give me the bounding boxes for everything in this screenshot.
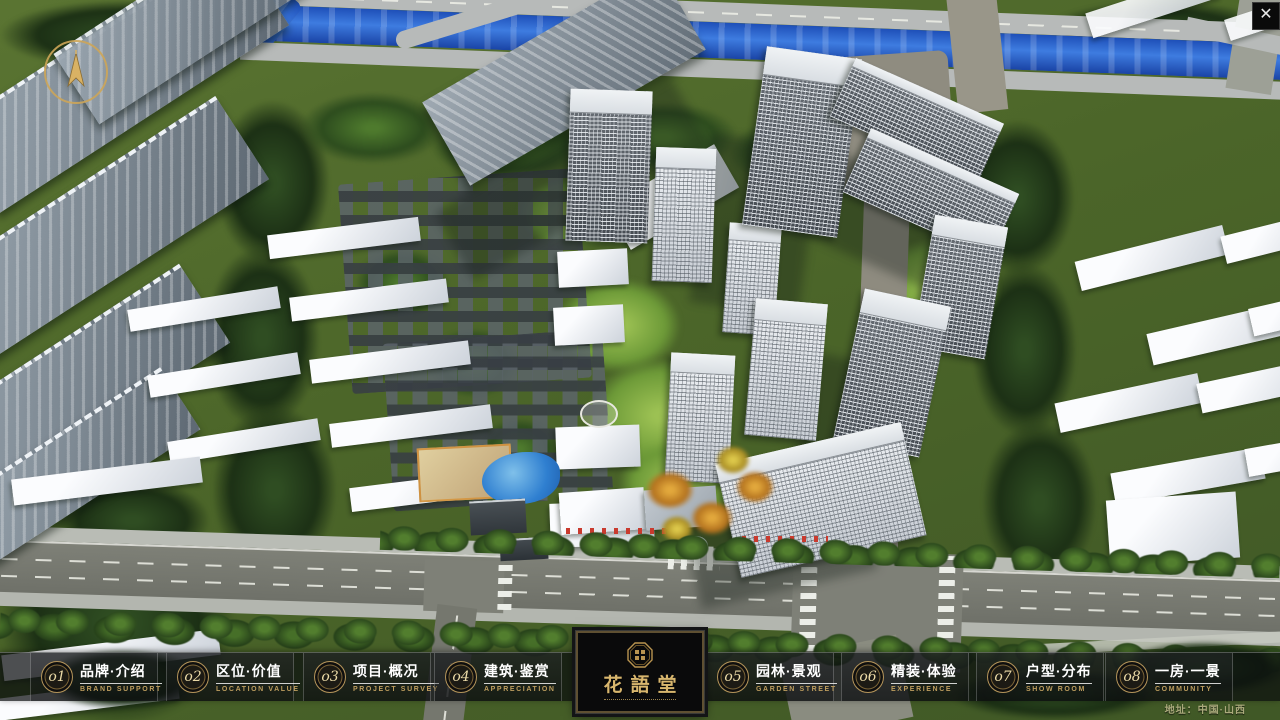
nav-label-en: GARDEN STREET — [756, 686, 837, 693]
close-button[interactable]: ✕ — [1252, 2, 1280, 30]
address-text: 地址：中国·山西 — [1165, 701, 1246, 716]
row-building — [1054, 373, 1203, 433]
estate-tower — [652, 147, 717, 283]
nav-label-en: SHOW ROOM — [1026, 686, 1092, 693]
midrise-building — [553, 304, 625, 346]
estate-tower — [744, 298, 828, 441]
midrise-building — [557, 248, 629, 288]
project-name: 花語堂 — [603, 670, 684, 697]
close-icon: ✕ — [1259, 6, 1272, 23]
nav-item-location[interactable]: o2 区位·价值 LOCATION VALUE — [166, 653, 294, 701]
row-building — [1196, 357, 1280, 414]
nav-number-badge: o7 — [987, 661, 1019, 693]
nav-label-zh: 户型·分布 — [1026, 661, 1092, 684]
nav-item-brand[interactable]: o1 品牌·介绍 BRAND SUPPORT — [30, 653, 158, 701]
nav-label-zh: 建筑·鉴赏 — [484, 661, 556, 684]
nav-number-badge: o4 — [445, 661, 477, 693]
estate-tower — [565, 89, 652, 244]
nav-number-badge: o5 — [717, 661, 749, 693]
nav-number-badge: o6 — [852, 661, 884, 693]
nav-label-zh: 精装·体验 — [891, 661, 957, 684]
project-logo-panel[interactable]: 花語堂 — [575, 630, 705, 714]
row-building — [1220, 208, 1280, 264]
midrise-building — [555, 425, 640, 470]
nav-item-garden[interactable]: o5 园林·景观 GARDEN STREET — [706, 653, 834, 701]
row-building — [1248, 288, 1280, 337]
garden-plaza-ring — [580, 400, 618, 428]
nav-item-views[interactable]: o8 一房·一景 COMMUNITY — [1105, 653, 1233, 701]
row-building — [1075, 225, 1230, 291]
nav-label-zh: 区位·价值 — [216, 661, 300, 684]
nav-item-architecture[interactable]: o4 建筑·鉴赏 APPRECIATION — [434, 653, 562, 701]
nav-item-floorplan[interactable]: o7 户型·分布 SHOW ROOM — [976, 653, 1104, 701]
logo-seal-icon — [627, 642, 653, 668]
nav-label-en: APPRECIATION — [484, 686, 556, 693]
compass-north-arrow-icon — [54, 50, 98, 94]
autumn-tree — [645, 470, 695, 510]
nav-label-en: BRAND SUPPORT — [80, 686, 162, 693]
west-intersection — [423, 559, 505, 613]
nav-label-zh: 项目·概况 — [353, 661, 439, 684]
nav-label-en: LOCATION VALUE — [216, 686, 300, 693]
row-building — [1244, 431, 1280, 477]
logo-tagline-rule — [604, 699, 676, 702]
autumn-tree — [735, 470, 775, 504]
nav-label-zh: 一房·一景 — [1155, 661, 1221, 684]
compass-indicator — [44, 40, 108, 104]
nav-number-badge: o2 — [177, 661, 209, 693]
crosswalk — [497, 564, 512, 610]
nav-label-en: EXPERIENCE — [891, 686, 957, 693]
nav-label-zh: 园林·景观 — [756, 661, 837, 684]
nav-label-en: PROJECT SURVEY — [353, 686, 439, 693]
masterplan-map[interactable] — [0, 0, 1280, 720]
nav-item-interior[interactable]: o6 精装·体验 EXPERIENCE — [841, 653, 969, 701]
nav-label-zh: 品牌·介绍 — [80, 661, 162, 684]
nav-number-badge: o8 — [1116, 661, 1148, 693]
sales-presentation-screen: ✕ o1 品牌·介绍 BRAND SUPPORT o2 区位·价值 LOCATI… — [0, 0, 1280, 720]
nav-number-badge: o3 — [314, 661, 346, 693]
nav-label-en: COMMUNITY — [1155, 686, 1221, 693]
autumn-tree — [715, 445, 751, 475]
nav-item-project[interactable]: o3 项目·概况 PROJECT SURVEY — [303, 653, 431, 701]
nav-number-badge: o1 — [41, 661, 73, 693]
